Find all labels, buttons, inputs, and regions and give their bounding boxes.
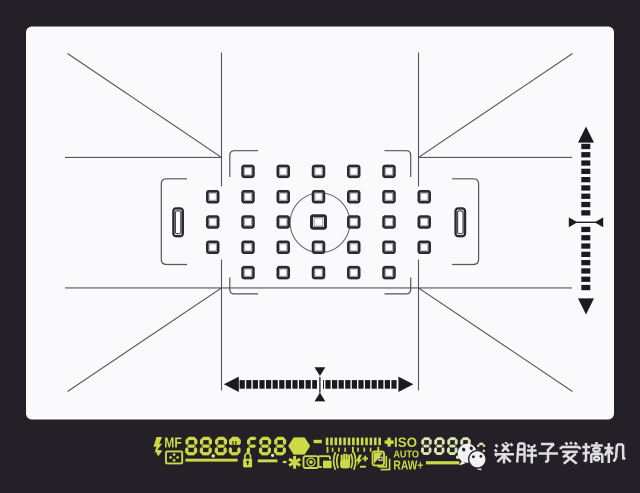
svg-text:MF: MF bbox=[164, 435, 182, 451]
svg-text:RAW+: RAW+ bbox=[393, 457, 423, 472]
